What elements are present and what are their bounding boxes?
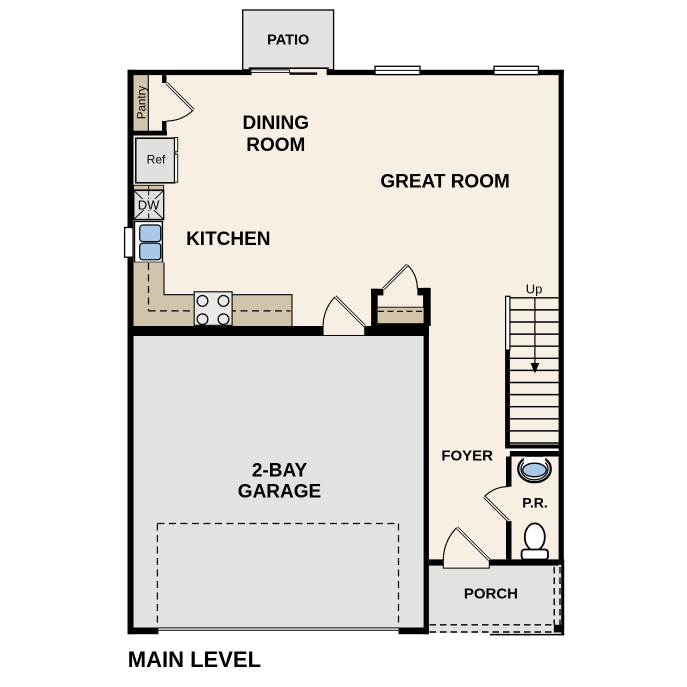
svg-text:DW: DW xyxy=(138,198,160,213)
svg-text:KITCHEN: KITCHEN xyxy=(186,229,270,250)
svg-text:GARAGE: GARAGE xyxy=(238,481,321,502)
svg-text:PATIO: PATIO xyxy=(267,32,309,48)
svg-text:ROOM: ROOM xyxy=(246,135,305,156)
svg-text:Up: Up xyxy=(526,281,543,296)
svg-text:DINING: DINING xyxy=(243,113,310,134)
svg-text:P.R.: P.R. xyxy=(522,494,547,510)
svg-text:GREAT ROOM: GREAT ROOM xyxy=(380,171,509,192)
svg-text:MAIN LEVEL: MAIN LEVEL xyxy=(128,647,261,672)
svg-text:FOYER: FOYER xyxy=(441,448,493,465)
svg-text:Ref: Ref xyxy=(147,153,166,167)
svg-text:Pantry: Pantry xyxy=(135,86,148,120)
svg-text:2-BAY: 2-BAY xyxy=(252,460,308,481)
svg-text:PORCH: PORCH xyxy=(464,585,518,602)
